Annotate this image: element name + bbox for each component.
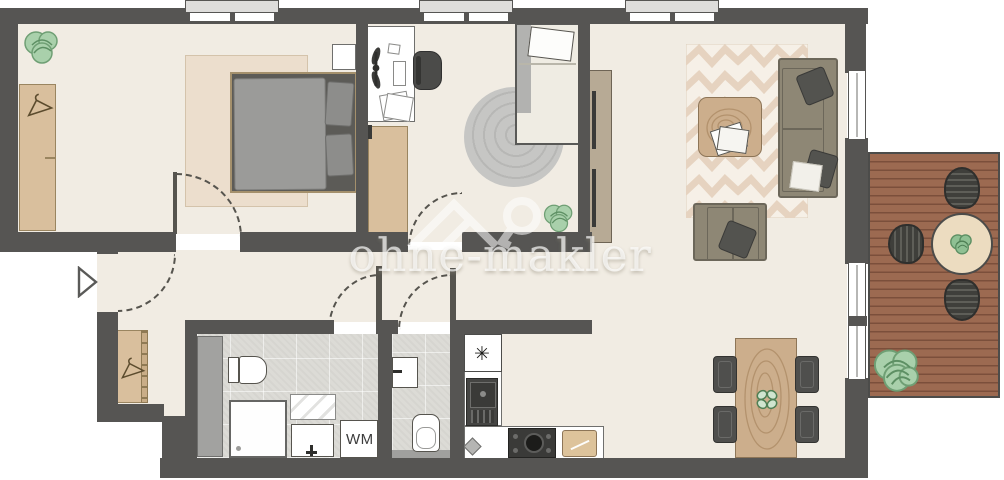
- coffee-table-book: [716, 126, 749, 154]
- bathroom-toilet: [239, 356, 267, 384]
- sofa-throw: [789, 161, 822, 192]
- balcony-plant-icon: [871, 344, 923, 396]
- wall-bedroom-bottom: [0, 232, 176, 252]
- window-mullion: [670, 12, 675, 22]
- tall-cabinet: [588, 70, 612, 243]
- single-bed: [515, 23, 580, 145]
- bathroom-mirror: [290, 394, 336, 420]
- balcony-door: [848, 262, 866, 380]
- wc-basin: [392, 357, 418, 388]
- wall-bath-wc-divider: [378, 320, 392, 460]
- balcony-chair-left: [888, 224, 924, 264]
- wall-bath-left: [185, 320, 197, 460]
- entrance-arrow-icon: [77, 266, 99, 298]
- wc-toilet: [412, 414, 440, 452]
- washing-machine-label: WM: [346, 431, 374, 448]
- dining-chair: [795, 356, 819, 393]
- dining-chair: [795, 406, 819, 443]
- bed-duvet: [234, 78, 327, 191]
- dresser-handle: [368, 125, 372, 139]
- dining-chair: [713, 356, 737, 393]
- kitchen-sink: [466, 378, 498, 426]
- bed-pillow: [325, 133, 354, 176]
- living-side-window: [848, 70, 866, 140]
- floor-plan: ✳ WM: [0, 0, 1004, 480]
- wall-wc-kitchen: [450, 320, 464, 460]
- wall-bath-top: [185, 320, 334, 334]
- bathroom-sink: [291, 424, 334, 457]
- bedroom-plant-icon: [22, 27, 62, 67]
- window-mullion: [230, 12, 235, 22]
- watermark-text: ohne-makler: [320, 228, 680, 282]
- wall-kitchen-top: [450, 320, 592, 334]
- desk-lamp-icon: [366, 46, 386, 92]
- bed-pillow: [324, 81, 354, 127]
- desk-papers: [383, 93, 414, 122]
- balcony-chair-bottom: [944, 279, 980, 321]
- stove: [508, 428, 556, 458]
- bathroom-toilet-tank: [228, 357, 239, 383]
- double-bed: [230, 72, 357, 193]
- nightstand: [332, 44, 356, 70]
- wall-bottom: [160, 458, 868, 478]
- fridge-star-symbol: ✳: [474, 343, 490, 365]
- wall-right-lower: [845, 378, 868, 460]
- bathroom-shaft: [197, 336, 223, 457]
- washing-machine: WM: [340, 420, 378, 458]
- desk-item: [387, 43, 400, 55]
- cutting-board: [562, 430, 597, 457]
- office-chair: [413, 51, 442, 90]
- wall-jog-h: [97, 404, 164, 422]
- dining-chair: [713, 406, 737, 443]
- wall-entry-upper: [97, 232, 118, 254]
- balcony-table-plant-icon: [948, 230, 976, 258]
- fridge: ✳: [464, 334, 502, 372]
- desk-keyboard: [393, 61, 406, 86]
- wall-right-upper: [845, 24, 866, 73]
- wall-kids-living: [578, 20, 590, 252]
- wall-right-mid: [845, 138, 868, 264]
- wall-left: [0, 8, 18, 246]
- bed-pillow: [527, 26, 574, 61]
- balcony-chair-top: [944, 167, 980, 209]
- shower: [229, 400, 287, 458]
- dining-table-plant-icon: [753, 385, 781, 413]
- window-mullion: [464, 12, 469, 22]
- wall-bedroom-kids: [356, 20, 368, 252]
